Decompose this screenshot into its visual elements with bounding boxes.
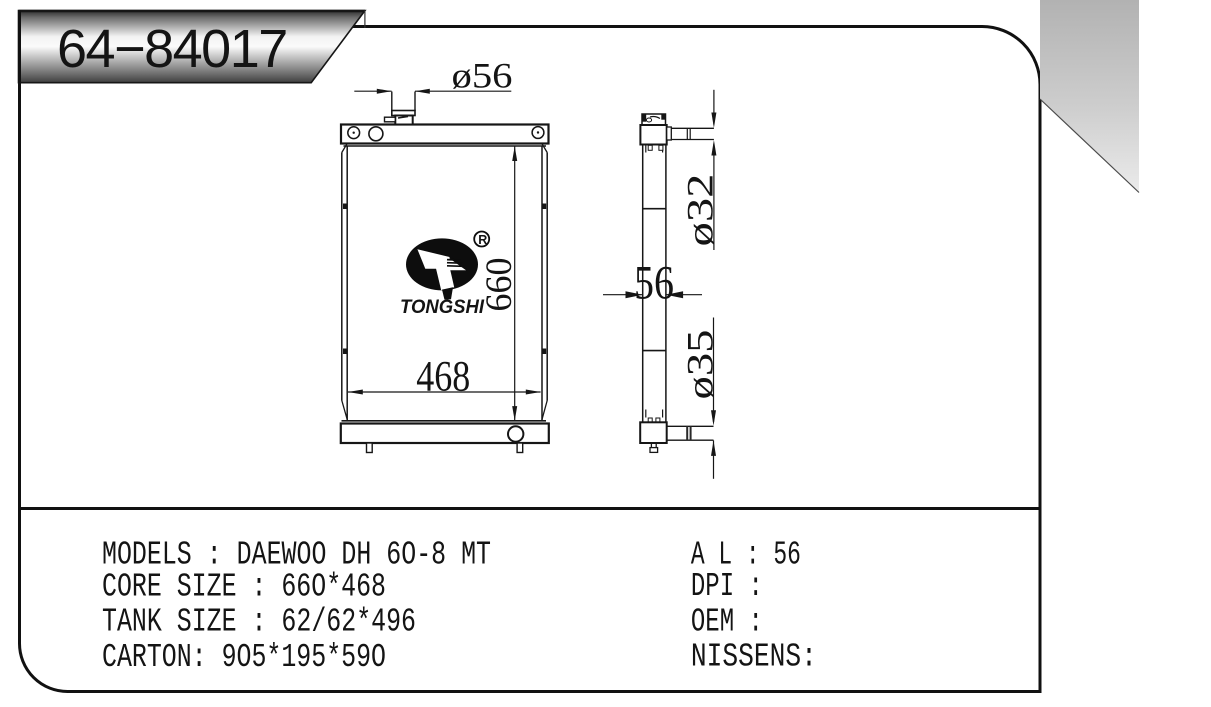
svg-text:CORE SIZE : 66O*468: CORE SIZE : 66O*468 [102,568,386,606]
svg-text:CARTON: 9O5*195*59O: CARTON: 9O5*195*59O [102,639,386,677]
svg-text:TANK SIZE : 62/62*496: TANK SIZE : 62/62*496 [102,604,416,642]
svg-text:TONGSHI: TONGSHI [400,296,485,318]
svg-text:660: 660 [479,258,520,312]
svg-text:NISSENS:: NISSENS: [691,639,817,677]
svg-text:64−84017: 64−84017 [57,19,287,79]
svg-text:ø35: ø35 [681,330,722,400]
svg-text:OEM :: OEM : [691,603,763,641]
svg-text:ø32: ø32 [681,174,722,247]
svg-text:ø56: ø56 [452,56,513,96]
svg-text:DPI :: DPI : [691,568,763,606]
svg-text:R: R [478,233,487,247]
svg-text:468: 468 [416,354,470,401]
svg-text:56: 56 [634,257,674,310]
